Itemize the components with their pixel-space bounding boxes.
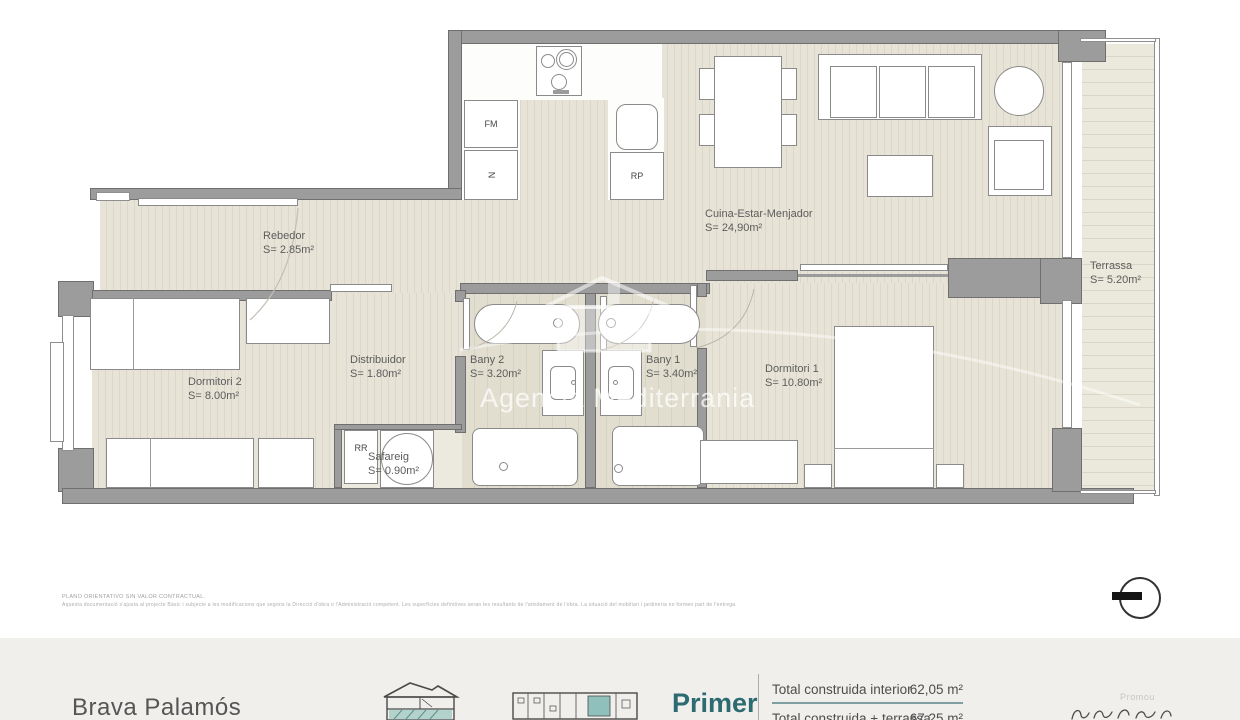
area-row1-value: 62,05 m² bbox=[866, 682, 963, 697]
disclaimer-title: PLANO ORIENTATIVO SIN VALOR CONTRACTUAL. bbox=[62, 594, 205, 600]
blanket-line bbox=[834, 448, 934, 449]
building-section-icon bbox=[380, 680, 460, 720]
floorplan-key-icon bbox=[512, 690, 638, 720]
room-label-rebedor: Rebedor S= 2.85m² bbox=[263, 229, 314, 258]
watermark-text: Agencia Mediterrania bbox=[480, 383, 755, 414]
room-area: S= 2.85m² bbox=[263, 243, 314, 257]
disclaimer-text: Aquesta documentació s'ajusta al project… bbox=[62, 602, 737, 608]
area-row2-value: 67,25 m² bbox=[866, 711, 963, 720]
area-table-rule bbox=[772, 702, 963, 704]
pillow-line bbox=[133, 298, 134, 370]
room-label-cuina: Cuina-Estar-Menjador S= 24,90m² bbox=[705, 207, 813, 236]
room-area: S= 8.00m² bbox=[188, 389, 242, 403]
room-name: Distribuidor bbox=[350, 353, 406, 367]
cooktop-control bbox=[553, 90, 569, 94]
footer-divider bbox=[758, 674, 759, 720]
room-area: S= 1.80m² bbox=[350, 367, 406, 381]
room-label-safareig: Safareig S= 0.90m² bbox=[368, 450, 419, 479]
project-title: Brava Palamós bbox=[72, 694, 241, 720]
room-area: S= 0.90m² bbox=[368, 464, 419, 478]
room-name: Cuina-Estar-Menjador bbox=[705, 207, 813, 221]
floor-name: Primer bbox=[672, 688, 758, 719]
room-label-distribuidor: Distribuidor S= 1.80m² bbox=[350, 353, 406, 382]
room-label-dormitori2: Dormitori 2 S= 8.00m² bbox=[188, 375, 242, 404]
floorplan-sheet: FM N RP RR Re bbox=[0, 0, 1240, 720]
room-area: S= 24,90m² bbox=[705, 221, 813, 235]
room-name: Safareig bbox=[368, 450, 419, 464]
footer-bar: Brava Palamós Primer bbox=[0, 638, 1240, 720]
room-name: Dormitori 2 bbox=[188, 375, 242, 389]
promoter-label: Promou bbox=[1120, 692, 1155, 702]
promoter-logo-icon bbox=[1066, 706, 1196, 720]
north-indicator-bar bbox=[1112, 592, 1142, 600]
room-name: Rebedor bbox=[263, 229, 314, 243]
pillow-line bbox=[150, 438, 151, 488]
